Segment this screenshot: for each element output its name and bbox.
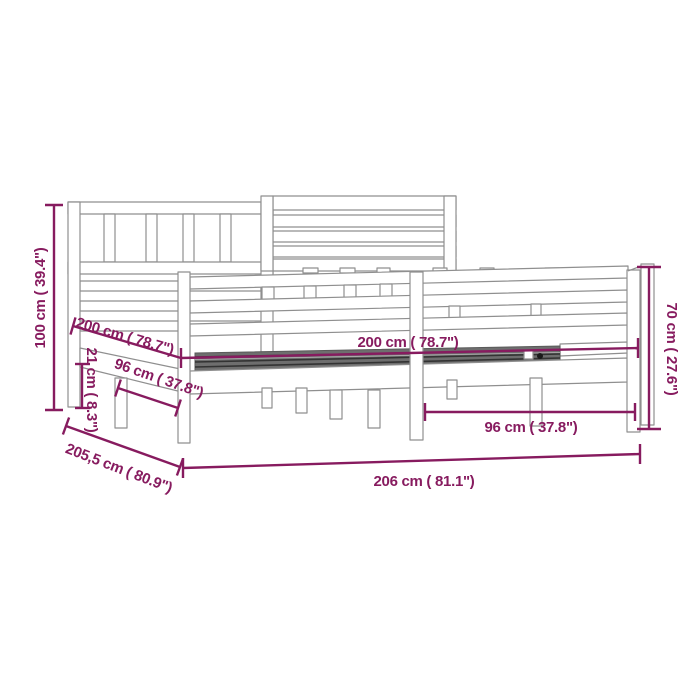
leg [447, 380, 457, 399]
side-rail-assembly [190, 266, 628, 336]
headboard-vertical-slat [104, 214, 115, 262]
overall-width-label: 206 cm ( 81.1") [373, 473, 474, 490]
headboard-horizontal-slat [273, 246, 456, 257]
side-rail-spindle [449, 306, 460, 318]
headboard-right-panel [261, 196, 456, 271]
headboard-bottom-rail [273, 259, 456, 271]
leg [368, 390, 380, 428]
inner-length-front-label: 200 cm ( 78.7") [357, 334, 458, 351]
headboard-horizontal-slat [273, 215, 456, 227]
headboard-vertical-slat [220, 214, 231, 262]
headboard-post [444, 196, 456, 271]
side-rail-bottom [190, 313, 628, 336]
headboard-vertical-slat [183, 214, 194, 262]
side-rail-mid [190, 290, 628, 313]
footboard-outer-post [641, 264, 654, 425]
center-post [410, 272, 423, 440]
leg [296, 388, 307, 413]
headboard-top-rail [273, 196, 456, 210]
headboard-horizontal-slat [273, 231, 456, 242]
leg-spacing-front-label: 96 cm ( 37.8") [485, 419, 578, 436]
bed-frame-dimension-diagram: 100 cm ( 39.4") 200 cm ( 78.7") 21 cm ( … [0, 0, 700, 700]
leg [115, 378, 127, 428]
headboard-mid-rail [68, 262, 273, 274]
side-rail-spindle [531, 304, 541, 316]
leg [262, 388, 272, 408]
leg [330, 390, 342, 419]
headboard-height-label: 100 cm ( 39.4") [32, 247, 49, 348]
diagram-canvas: 100 cm ( 39.4") 200 cm ( 78.7") 21 cm ( … [0, 0, 700, 700]
headboard-top-rail [68, 202, 273, 214]
overall-depth-label: 205,5 cm ( 80.9") [63, 440, 175, 496]
headboard-left-leg [68, 202, 80, 407]
headboard-post [261, 196, 273, 271]
bed-frame-drawing [68, 196, 654, 443]
headboard-vertical-slat [146, 214, 157, 262]
side-rail-height-label: 21 cm ( 8.3") [83, 348, 100, 433]
footboard-height-label: 70 cm ( 27.6") [663, 303, 680, 396]
hardware-dot [537, 353, 543, 359]
